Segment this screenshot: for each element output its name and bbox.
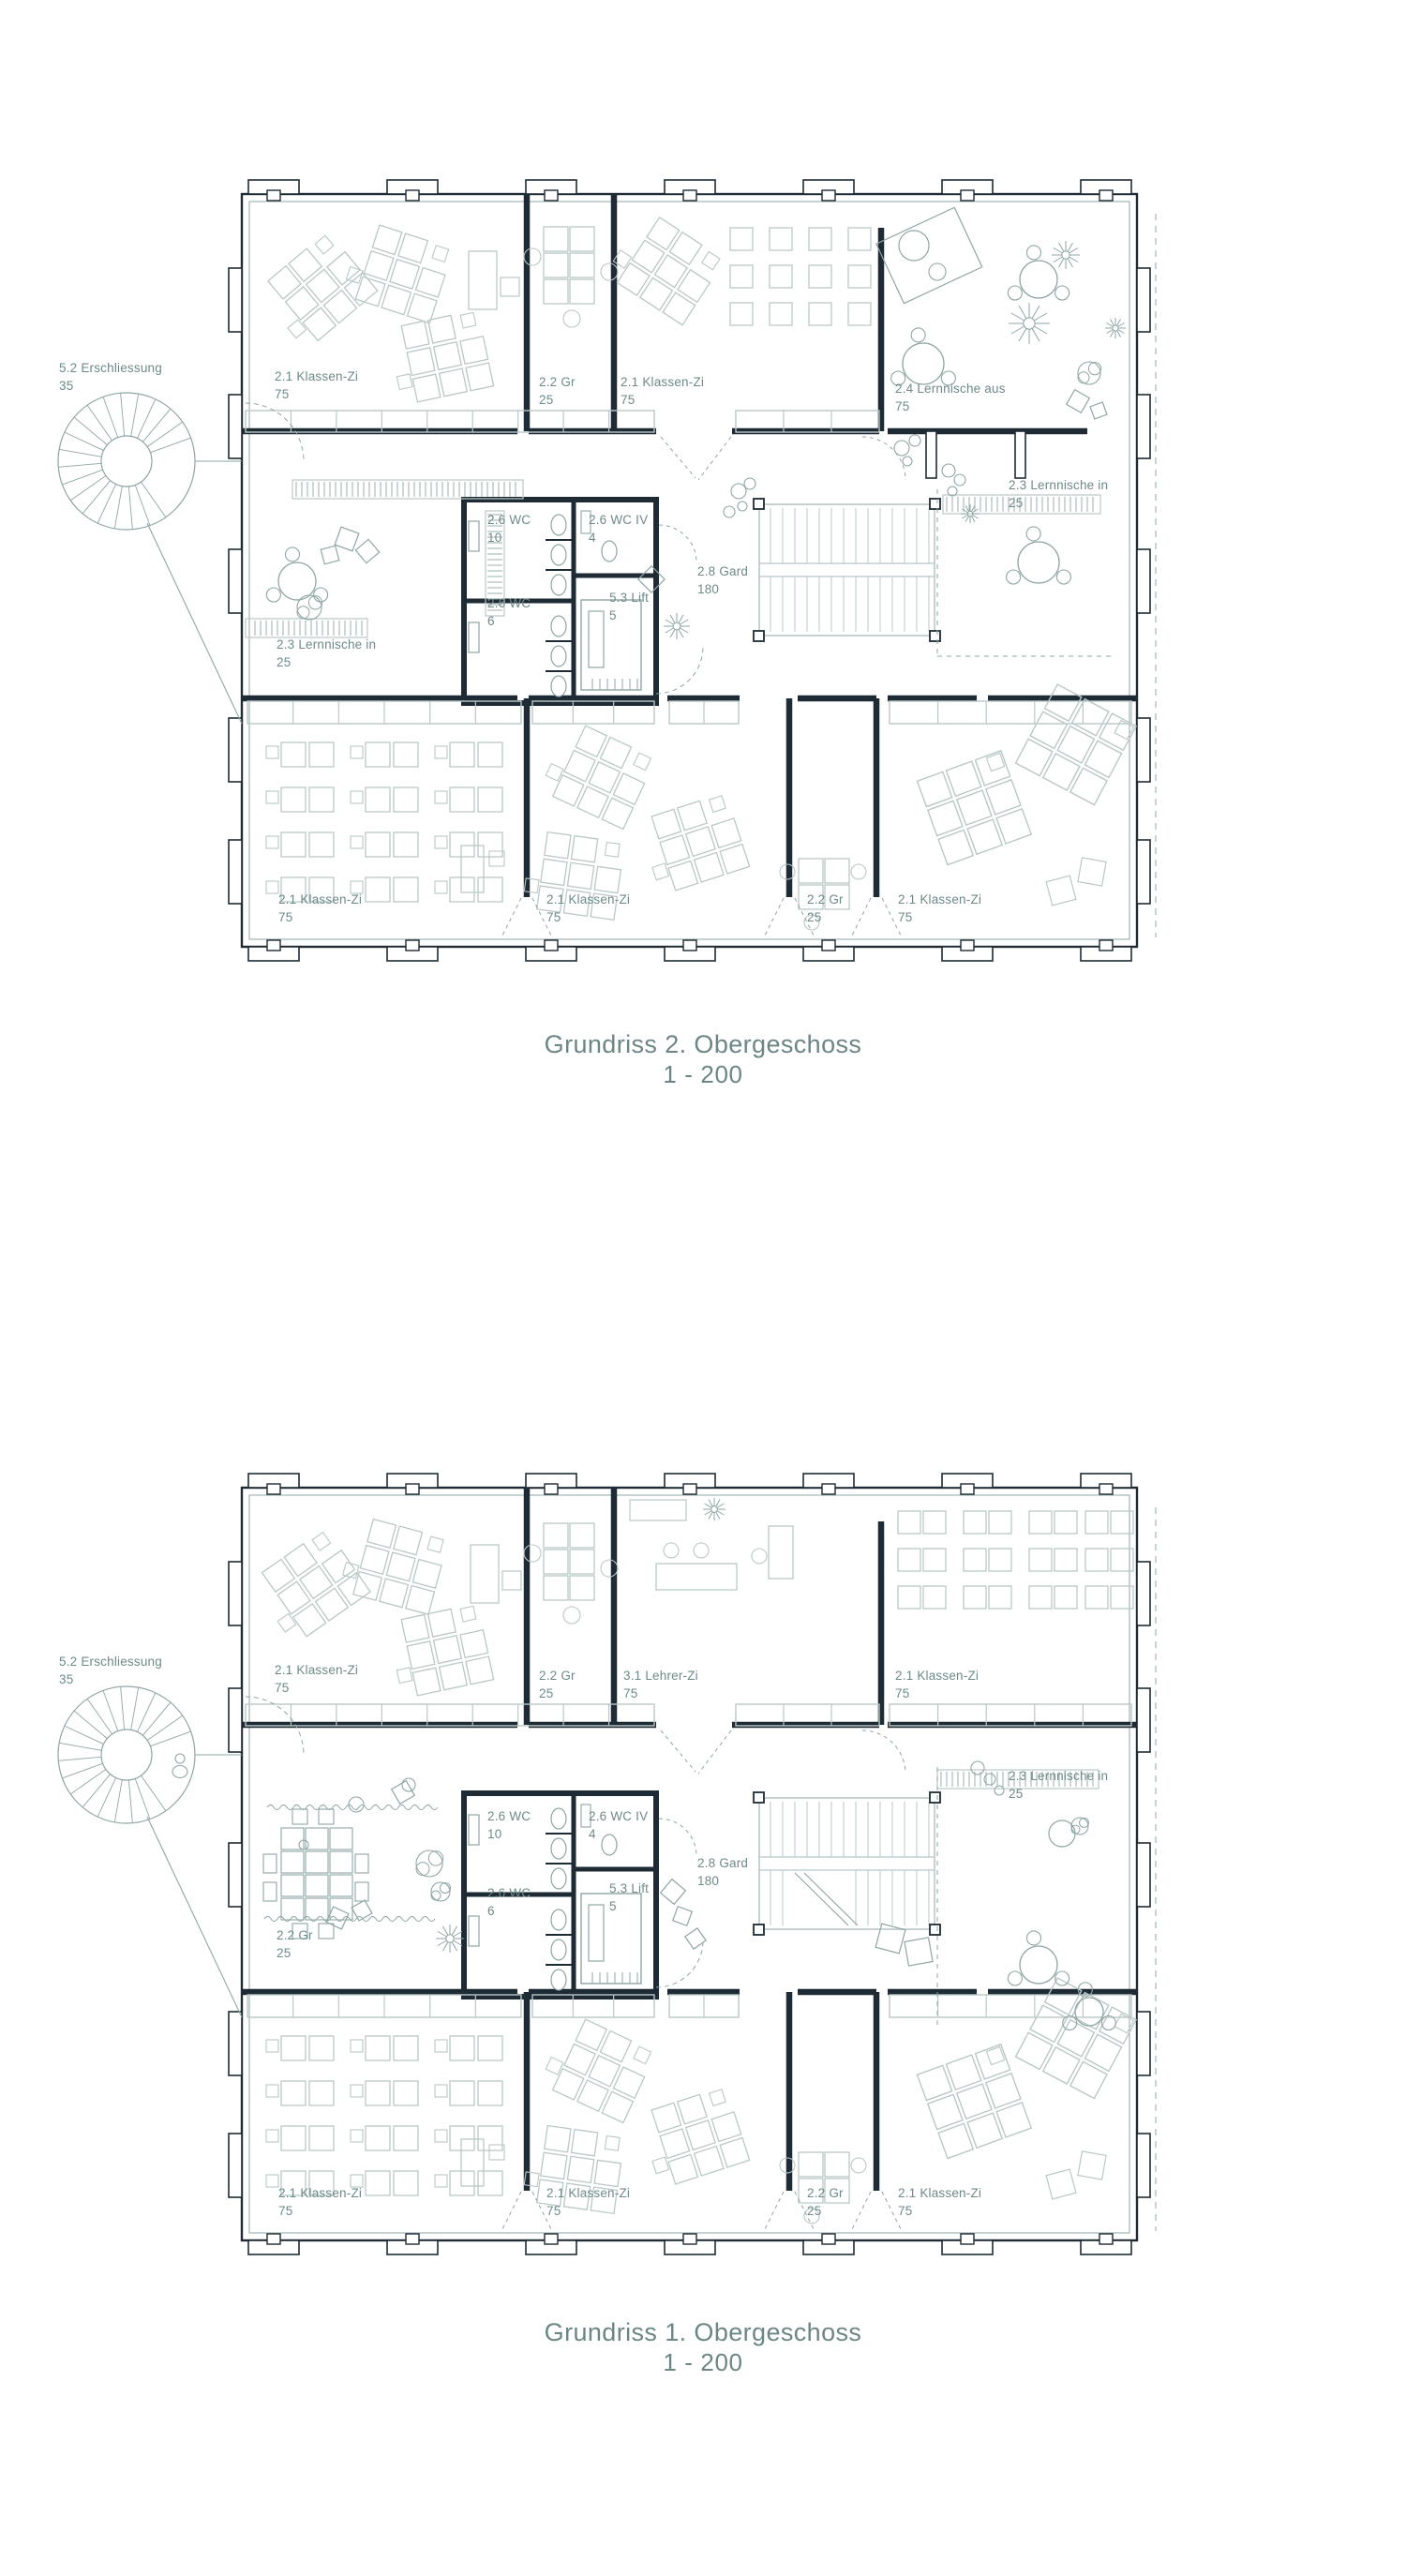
room-label-area: 25 (1009, 494, 1108, 512)
room-label: 5.2 Erschliessung35 (59, 359, 162, 395)
room-label-area: 75 (275, 385, 358, 403)
room-label-name: 2.1 Klassen-Zi (546, 891, 630, 908)
room-label: 2.2 Gr25 (807, 2184, 844, 2220)
room-label-area: 4 (589, 1825, 648, 1843)
labels-layer: 5.2 Erschliessung352.1 Klassen-Zi752.2 G… (0, 0, 1406, 2576)
room-label-area: 75 (898, 2202, 981, 2220)
room-label-name: 2.6 WC (487, 1884, 531, 1902)
room-label: 2.1 Klassen-Zi75 (546, 2184, 630, 2220)
room-label-area: 25 (277, 653, 376, 671)
room-label-name: 5.2 Erschliessung (59, 1653, 162, 1670)
room-label-area: 75 (278, 908, 362, 926)
room-label: 2.1 Klassen-Zi75 (895, 1667, 979, 1702)
room-label-name: 2.4 Lernnische aus (895, 380, 1006, 397)
room-label-area: 5 (609, 1897, 649, 1915)
room-label-name: 2.2 Gr (539, 1667, 576, 1685)
room-label-name: 2.1 Klassen-Zi (898, 2184, 981, 2202)
room-label-area: 25 (539, 391, 576, 409)
room-label-name: 3.1 Lehrer-Zi (623, 1667, 698, 1685)
caption-scale: 1 - 200 (0, 2347, 1406, 2377)
room-label: 2.1 Klassen-Zi75 (275, 1661, 358, 1697)
room-label: 5.3 Lift5 (609, 1880, 649, 1915)
room-label-name: 2.1 Klassen-Zi (278, 2184, 362, 2202)
room-label-name: 2.6 WC (487, 511, 531, 529)
room-label: 2.1 Klassen-Zi75 (898, 891, 981, 926)
room-label: 5.2 Erschliessung35 (59, 1653, 162, 1688)
room-label-area: 75 (546, 2202, 630, 2220)
room-label-name: 2.1 Klassen-Zi (275, 367, 358, 385)
room-label: 2.3 Lernnische in25 (1009, 476, 1108, 512)
room-label-area: 35 (59, 1670, 162, 1688)
room-label: 2.2 Gr25 (277, 1926, 313, 1962)
caption-title: Grundriss 1. Obergeschoss (0, 2317, 1406, 2347)
room-label-area: 25 (277, 1944, 313, 1962)
room-label: 2.6 WC10 (487, 511, 531, 547)
room-label: 2.6 WC6 (487, 594, 531, 630)
room-label-area: 75 (623, 1685, 698, 1702)
room-label-area: 5 (609, 607, 649, 624)
room-label-name: 2.2 Gr (807, 891, 844, 908)
room-label-name: 2.3 Lernnische in (277, 636, 376, 653)
room-label-name: 2.6 WC (487, 594, 531, 612)
plan-caption-2og: Grundriss 2. Obergeschoss 1 - 200 (0, 1029, 1406, 1089)
room-label-area: 75 (275, 1679, 358, 1697)
room-label: 2.6 WC IV4 (589, 511, 648, 547)
room-label-area: 75 (278, 2202, 362, 2220)
room-label-area: 25 (1009, 1785, 1108, 1803)
room-label-name: 2.1 Klassen-Zi (278, 891, 362, 908)
room-label-area: 25 (807, 2202, 844, 2220)
room-label: 2.8 Gard180 (697, 562, 748, 598)
room-label-area: 180 (697, 1872, 748, 1890)
room-label-name: 2.3 Lernnische in (1009, 1767, 1108, 1785)
room-label: 2.1 Klassen-Zi75 (546, 891, 630, 926)
room-label: 2.6 WC6 (487, 1884, 531, 1920)
room-label: 2.1 Klassen-Zi75 (898, 2184, 981, 2220)
room-label: 2.2 Gr25 (539, 1667, 576, 1702)
room-label-area: 75 (621, 391, 704, 409)
room-label: 2.8 Gard180 (697, 1854, 748, 1890)
room-label-area: 6 (487, 1902, 531, 1920)
room-label-name: 2.8 Gard (697, 1854, 748, 1872)
plan-caption-1og: Grundriss 1. Obergeschoss 1 - 200 (0, 2317, 1406, 2377)
room-label-name: 5.3 Lift (609, 589, 649, 607)
room-label-name: 2.6 WC (487, 1807, 531, 1825)
room-label: 2.2 Gr25 (539, 373, 576, 409)
room-label-area: 25 (539, 1685, 576, 1702)
room-label-name: 2.3 Lernnische in (1009, 476, 1108, 494)
room-label-name: 2.1 Klassen-Zi (898, 891, 981, 908)
room-label-area: 75 (895, 397, 1006, 415)
room-label: 2.6 WC IV4 (589, 1807, 648, 1843)
room-label: 5.3 Lift5 (609, 589, 649, 624)
room-label-name: 2.6 WC IV (589, 1807, 648, 1825)
room-label-name: 2.2 Gr (807, 2184, 844, 2202)
room-label-area: 25 (807, 908, 844, 926)
room-label-name: 2.1 Klassen-Zi (621, 373, 704, 391)
room-label: 2.4 Lernnische aus75 (895, 380, 1006, 415)
room-label: 2.2 Gr25 (807, 891, 844, 926)
room-label-name: 2.2 Gr (539, 373, 576, 391)
room-label-name: 2.6 WC IV (589, 511, 648, 529)
room-label: 2.1 Klassen-Zi75 (275, 367, 358, 403)
room-label-area: 6 (487, 612, 531, 630)
room-label: 2.1 Klassen-Zi75 (278, 2184, 362, 2220)
room-label: 3.1 Lehrer-Zi75 (623, 1667, 698, 1702)
room-label: 2.3 Lernnische in25 (1009, 1767, 1108, 1803)
room-label: 2.3 Lernnische in25 (277, 636, 376, 671)
room-label-area: 75 (546, 908, 630, 926)
room-label-name: 5.2 Erschliessung (59, 359, 162, 377)
room-label-area: 75 (898, 908, 981, 926)
room-label-area: 10 (487, 1825, 531, 1843)
drawing-sheet: 5.2 Erschliessung352.1 Klassen-Zi752.2 G… (0, 0, 1406, 2576)
caption-title: Grundriss 2. Obergeschoss (0, 1029, 1406, 1059)
room-label-name: 2.1 Klassen-Zi (275, 1661, 358, 1679)
room-label-area: 75 (895, 1685, 979, 1702)
room-label: 2.1 Klassen-Zi75 (278, 891, 362, 926)
room-label-area: 180 (697, 580, 748, 598)
room-label: 2.6 WC10 (487, 1807, 531, 1843)
room-label-area: 4 (589, 529, 648, 547)
room-label-name: 2.8 Gard (697, 562, 748, 580)
room-label-area: 35 (59, 377, 162, 395)
room-label-name: 5.3 Lift (609, 1880, 649, 1897)
room-label-area: 10 (487, 529, 531, 547)
room-label-name: 2.1 Klassen-Zi (546, 2184, 630, 2202)
room-label-name: 2.2 Gr (277, 1926, 313, 1944)
caption-scale: 1 - 200 (0, 1059, 1406, 1089)
room-label: 2.1 Klassen-Zi75 (621, 373, 704, 409)
room-label-name: 2.1 Klassen-Zi (895, 1667, 979, 1685)
